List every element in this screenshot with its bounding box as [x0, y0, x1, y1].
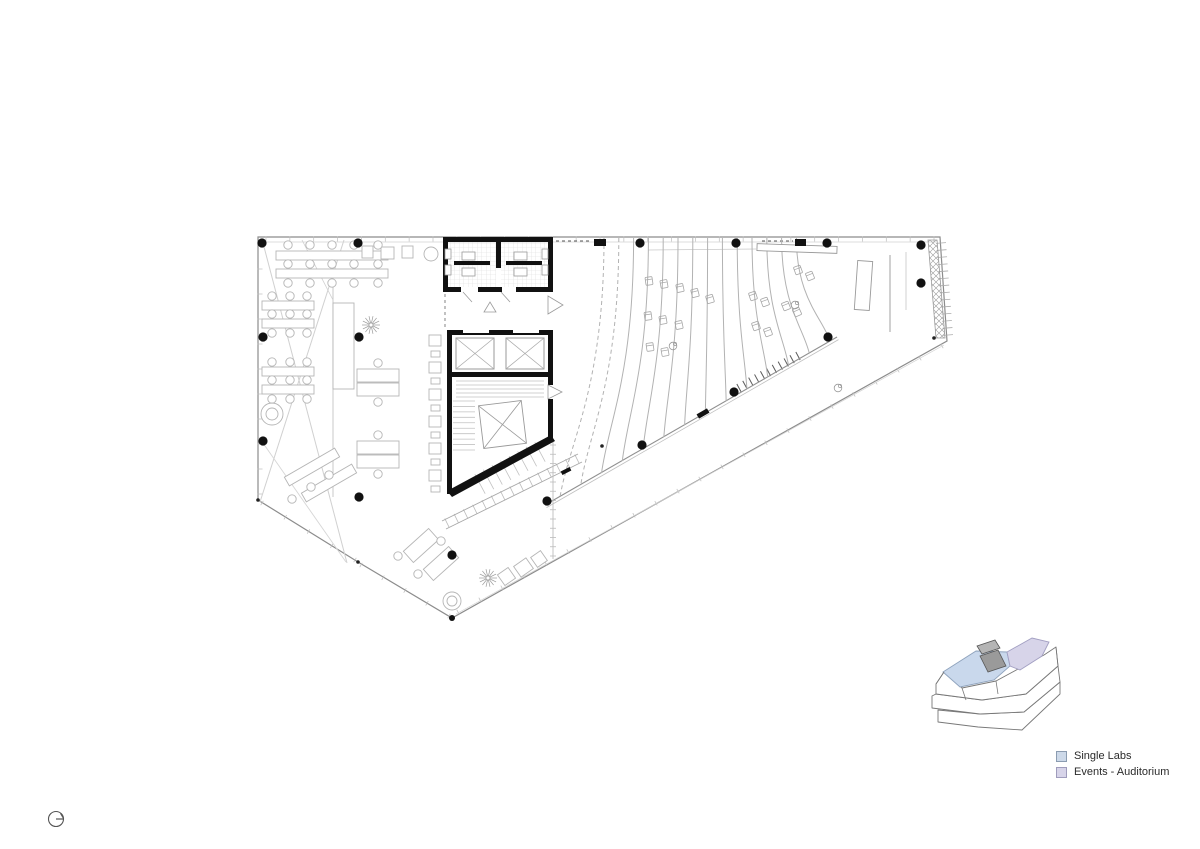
legend-item-single-labs: Single Labs	[1056, 750, 1169, 762]
column-dot	[916, 278, 925, 287]
column-dot	[635, 238, 644, 247]
column-dot	[916, 240, 925, 249]
wc-fixture	[542, 265, 548, 275]
orientation-symbol	[49, 812, 64, 827]
column-dot	[353, 238, 362, 247]
events-auditorium-swatch	[1056, 767, 1067, 778]
column-dot	[823, 332, 832, 341]
column-dot	[731, 238, 740, 247]
single-labs-swatch	[1056, 751, 1067, 762]
column-dot	[354, 332, 363, 341]
column-dot	[637, 440, 646, 449]
column-dot	[258, 436, 267, 445]
keyplan-axon-inset	[932, 638, 1060, 730]
wc-fixture	[514, 252, 527, 260]
wc-fixture	[542, 249, 548, 259]
column-dot	[354, 492, 363, 501]
column-dot	[257, 238, 266, 247]
column-dot	[822, 238, 831, 247]
wc-fixture	[462, 268, 475, 276]
column-dot	[729, 387, 738, 396]
legend-item-events-auditorium: Events - Auditorium	[1056, 766, 1169, 778]
events-auditorium-label: Events - Auditorium	[1074, 766, 1169, 778]
single-labs-label: Single Labs	[1074, 750, 1132, 762]
column-dot	[542, 496, 551, 505]
stair-landing	[479, 401, 527, 449]
legend: Single Labs Events - Auditorium	[1056, 750, 1169, 778]
column-dot	[447, 550, 456, 559]
wc-fixture	[462, 252, 475, 260]
wc-fixture	[445, 265, 451, 275]
wc-fixture	[445, 249, 451, 259]
wc-fixture	[514, 268, 527, 276]
drawing-sheet: Single Labs Events - Auditorium	[0, 0, 1200, 849]
floor-plan-drawing	[0, 0, 1200, 849]
column-dot	[258, 332, 267, 341]
